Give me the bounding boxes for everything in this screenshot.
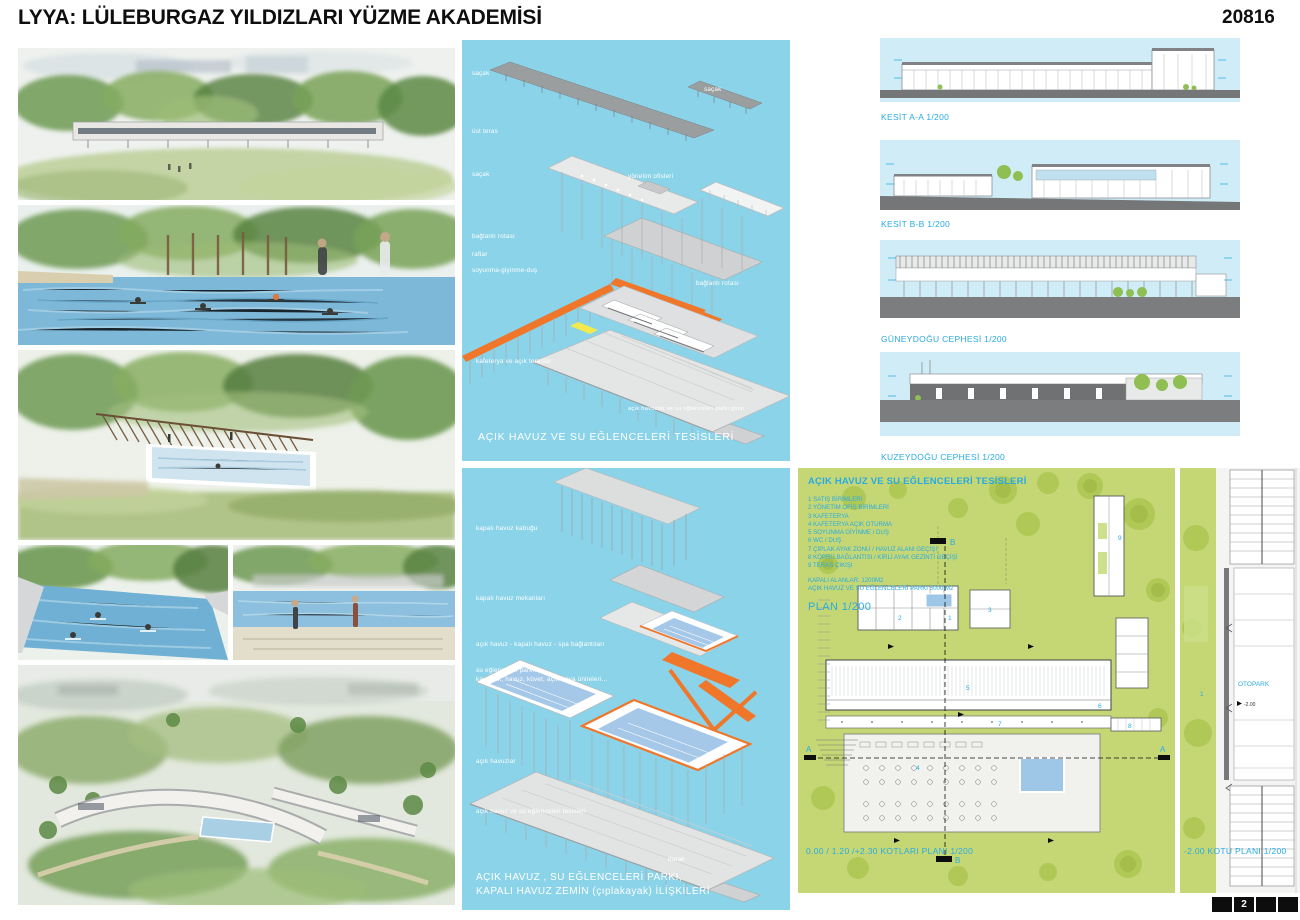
elevation-southeast-drawing [880, 240, 1240, 330]
plan-number: 6 [1098, 703, 1102, 710]
render-canal-pool [18, 545, 228, 660]
area-total: AÇIK HAVUZ VE SU EĞLENCELERİ PARKI 5000 … [808, 585, 1004, 593]
legend-item: 2 YÖNETİM OFİS BİRİMLERİ [808, 504, 1004, 512]
plan-number: 4 [916, 765, 920, 772]
pager-box [1212, 897, 1232, 912]
axon-label: raflar [472, 251, 488, 258]
legend-item: 9 TERAS ÇIKIŞI [808, 562, 1004, 570]
axon-caption-line2: KAPALI HAVUZ ZEMİN (çıplakayak) İLİŞKİLE… [476, 886, 710, 897]
plan-legend: AÇIK HAVUZ VE SU EĞLENCELERİ TESİSLERİ 1… [808, 476, 1008, 613]
plan-heading: AÇIK HAVUZ VE SU EĞLENCELERİ TESİSLERİ [808, 476, 1008, 487]
axon-label: açık havuzlar ve su eğlenceleri parkı gi… [628, 406, 744, 412]
exploded-axon-open-pool-facilities: saçak üst teras saçak bağlantı rotası ra… [462, 40, 790, 461]
plan-number: 7 [998, 721, 1002, 728]
section-marker-a-left: A [806, 745, 812, 754]
parking-level-label: -2.00 [1244, 702, 1256, 708]
pager-box [1278, 897, 1298, 912]
render-pool-deck [233, 545, 455, 660]
axon-label: saçak [704, 86, 721, 93]
section-bb-drawing [880, 140, 1240, 216]
axon-label: yönetim ofisleri [628, 173, 673, 180]
legend-item: 1 SATIŞ BİRİMLERİ [808, 496, 1004, 504]
section-marker-a-right: A [1160, 745, 1166, 754]
plan-number: 1 [948, 615, 952, 622]
axon-label: bağlantı rotası [696, 280, 739, 287]
axon-label: açık havuzlar [476, 758, 516, 765]
plan-number: 5 [966, 685, 970, 692]
axon-label: soyunma-giyinme-duş [472, 267, 537, 274]
legend-item: 5 SOYUNMA GİYİNME / DUŞ [808, 529, 1004, 537]
elevation-northeast-label: KUZEYDOĞU CEPHESİ 1/200 [881, 452, 1005, 462]
competition-board: { "header": { "title": "LYYA: LÜLEBURGAZ… [0, 0, 1300, 920]
pager-box-current: 2 [1234, 897, 1254, 912]
section-aa-drawing [880, 38, 1240, 108]
sheet-pager: 2 [1212, 897, 1298, 912]
axon-label: açık havuz - kapalı havuz - spa bağlantı… [476, 641, 605, 648]
pager-box [1256, 897, 1276, 912]
plan-parking-caption: -2.00 KOTU PLANI 1/200 [1184, 846, 1287, 856]
axon-label: kapalı havuz mekanları [476, 595, 545, 602]
render-aerial-site-view [18, 48, 455, 200]
page-title: LYYA: LÜLEBURGAZ YILDIZLARI YÜZME AKADEM… [18, 6, 542, 30]
otopark-label: OTOPARK [1238, 681, 1270, 688]
legend-item: 3 KAFETERYA [808, 513, 1004, 521]
axon-caption-line1: AÇIK HAVUZ , SU EĞLENCELERİ PARKI, [476, 872, 682, 883]
legend-item: 6 WC / DUŞ [808, 537, 1004, 545]
legend-item: 7 ÇIPLAK AYAK ZONU / HAVUZ ALANI GEÇİŞİ [808, 546, 1004, 554]
render-pergola-pool [18, 350, 455, 540]
plan-number: 9 [1118, 535, 1122, 542]
axon-label: kapalı havuz kabuğu [476, 525, 538, 532]
parking-annotation: 1 [1200, 691, 1204, 698]
plan-number: 2 [898, 615, 902, 622]
axon-label: bağlantı rotası [472, 233, 515, 240]
render-pool-swimmers [18, 205, 455, 345]
plan-main-caption: 0.00 / 1.20 /+2.30 KOTLARI PLANI 1/200 [806, 846, 973, 856]
section-marker-b-bottom: B [955, 856, 960, 865]
legend-item: 4 KAFETERYA AÇIK OTURMA [808, 521, 1004, 529]
plan-parking: OTOPARK -2.00 1 -2.00 KOTU PLANI 1/200 [1180, 468, 1300, 893]
elevation-northeast-drawing [880, 352, 1240, 449]
exploded-axon-pool-relations: kapalı havuz kabuğu kapalı havuz mekanla… [462, 468, 790, 910]
axon-label: kaydırak, havuz, küvet, açık hava ünitel… [476, 676, 607, 683]
plan-main: B B A A 1 2 3 4 5 6 7 8 9 AÇIK HAVUZ VE … [798, 468, 1175, 893]
area-total: KAPALI ALANLAR: 1200M2 [808, 577, 1004, 585]
axon-label: durak [668, 856, 685, 863]
axon-label: açık havuz ve su eğlenceleri tesisleri [476, 808, 586, 815]
entry-number: 20816 [1222, 7, 1275, 29]
axon-label: saçak [472, 70, 489, 77]
axon-label: kafeterya ve açık teraslar [476, 358, 552, 365]
elevation-southeast-label: GÜNEYDOĞU CEPHESİ 1/200 [881, 334, 1007, 344]
legend-item: 8 KÖPRÜ BAĞLANTISI / KİRLİ AYAK GEZİNTİ … [808, 554, 958, 562]
section-aa-label: KESİT A-A 1/200 [881, 112, 949, 122]
section-bb-label: KESİT B-B 1/200 [881, 219, 950, 229]
axon-caption: AÇIK HAVUZ VE SU EĞLENCELERİ TESİSLERİ [478, 431, 734, 443]
plan-scale-label: PLAN 1/200 [808, 601, 1008, 613]
axon-label: üst teras [472, 128, 498, 135]
axon-label: su eğlenceleri parkı: [476, 667, 537, 674]
axon-label: saçak [472, 171, 489, 178]
plan-number: 8 [1128, 723, 1132, 730]
render-aerial-complex [18, 665, 455, 905]
